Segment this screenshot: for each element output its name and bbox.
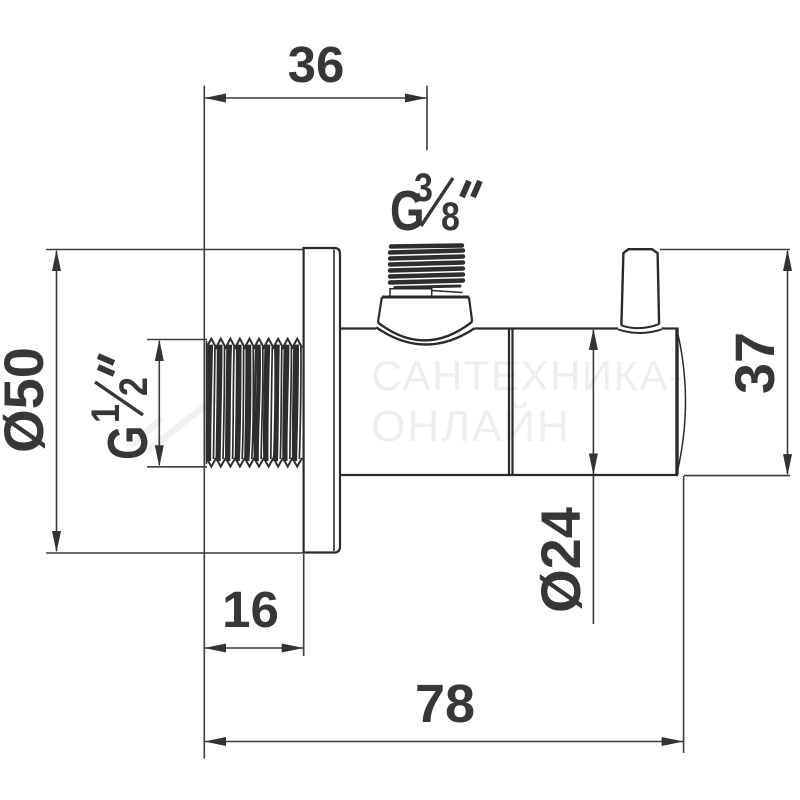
- svg-text:36: 36: [288, 36, 345, 93]
- svg-text:78: 78: [415, 674, 475, 734]
- svg-text:3: 3: [414, 164, 433, 209]
- svg-text:G: G: [96, 425, 160, 460]
- svg-text:8: 8: [441, 193, 460, 238]
- svg-text:Ø24: Ø24: [529, 507, 592, 613]
- svg-text:Ø50: Ø50: [0, 347, 55, 453]
- svg-text:САНТЕХНИКА-: САНТЕХНИКА-: [372, 352, 685, 399]
- svg-text:2: 2: [110, 377, 155, 396]
- svg-text:ОНЛАЙН: ОНЛАЙН: [371, 400, 571, 451]
- svg-text:16: 16: [222, 581, 279, 638]
- svg-text:1: 1: [82, 404, 127, 423]
- svg-text:37: 37: [723, 332, 786, 394]
